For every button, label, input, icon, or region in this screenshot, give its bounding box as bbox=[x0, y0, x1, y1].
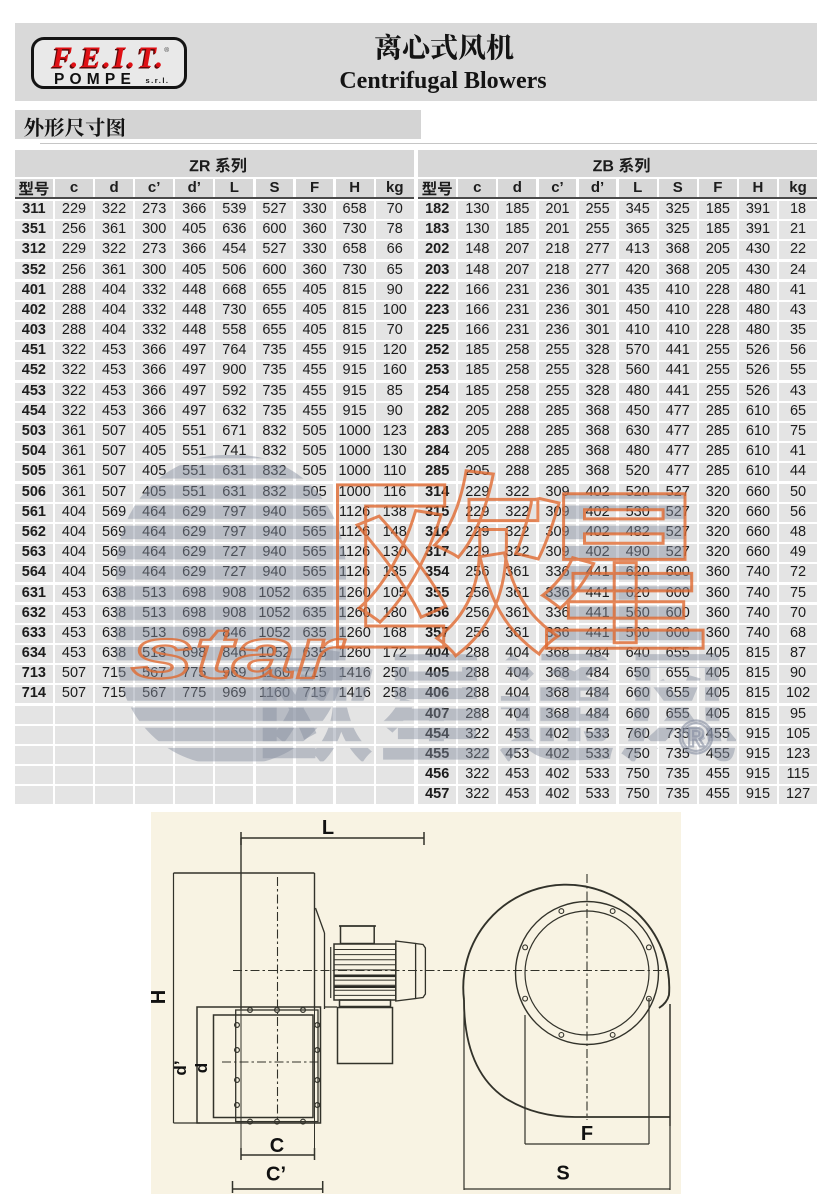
svg-text:S: S bbox=[556, 1163, 569, 1185]
svg-text:d: d bbox=[192, 1063, 211, 1073]
svg-text:C’: C’ bbox=[266, 1164, 286, 1186]
svg-text:C: C bbox=[270, 1135, 284, 1157]
svg-text:L: L bbox=[322, 817, 334, 839]
svg-text:H: H bbox=[148, 990, 170, 1004]
svg-text:F: F bbox=[581, 1123, 593, 1145]
svg-text:d’: d’ bbox=[171, 1060, 190, 1075]
